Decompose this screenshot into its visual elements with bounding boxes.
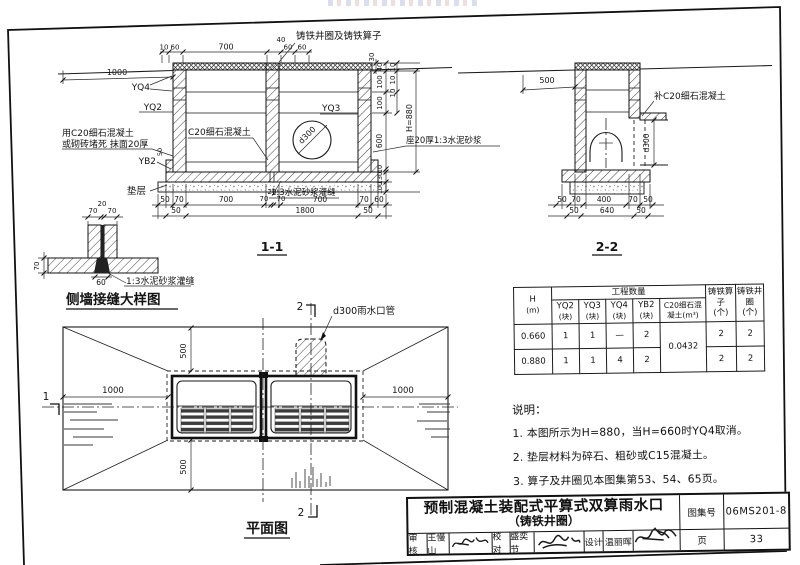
dimj-60: 60	[96, 278, 106, 287]
dim-r-600: 600	[375, 134, 384, 149]
notes-heading: 说明：	[512, 398, 792, 418]
dim22-b2-50a: 50	[569, 206, 579, 215]
dim-r-100a: 100	[376, 75, 384, 88]
note-item: 3. 算子及井圈见本图集第53、54、65页。	[513, 469, 793, 489]
note-item: 2. 垫层材料为碎石、粗砂或C15混凝土。	[513, 445, 793, 465]
col-header-yq2: YQ2(块)	[552, 300, 579, 324]
atlas-number-label: 图集号	[680, 495, 724, 531]
plan-title: 平面图	[246, 521, 288, 537]
dim-top-700: 700	[218, 43, 233, 52]
section-1-1-title: 1-1	[261, 239, 284, 254]
designer-name: 温丽晖	[604, 531, 634, 551]
dim-r-100b: 100	[376, 96, 384, 109]
dim22-b1-50a: 50	[557, 195, 567, 204]
marker-1-left: 1	[43, 391, 50, 403]
dim-b2-50a: 50	[171, 206, 181, 215]
dim-b1-70d: 70	[359, 195, 369, 204]
quantity-table: H(m) 工程数量 铸铁算子(个) 铸铁井圈(个) YQ2(块) YQ3(块) …	[513, 283, 765, 374]
section-2-2-title: 2-2	[596, 239, 619, 254]
c20-volume-value: 0.0432	[660, 322, 707, 373]
notes: 说明： 1. 本图所示为H=880，当H=660时YQ4取消。 2. 垫层材料为…	[512, 398, 793, 497]
label-yq3: YQ3	[321, 104, 340, 114]
page-number: 33	[724, 529, 788, 550]
dim22-b2-50b: 50	[636, 206, 646, 215]
dim-r-100c: 100	[376, 182, 384, 194]
dimj-70-left: 70	[33, 262, 41, 271]
col-header-c20: C20细石混凝土(m³)	[660, 298, 706, 323]
designer-label: 设计	[584, 531, 604, 551]
label-infill-concrete: C20细石混凝土	[188, 126, 251, 138]
col-header-ring: 铸铁井圈(个)	[735, 284, 764, 321]
dim-1000-left: 1000	[107, 68, 127, 77]
dimj-70a: 70	[89, 207, 98, 215]
label-seal-line1: 用C20细石混凝土	[62, 127, 134, 139]
dim-b1-700b: 700	[313, 195, 328, 204]
plan-view: d300雨水口管 2 2 1 500 1000 1000 500 平面图	[42, 301, 458, 538]
reviewer-signature	[450, 533, 493, 554]
table-row: 0.880 1 1 4 2 2 2	[514, 346, 764, 374]
dimp-1000-left: 1000	[102, 386, 124, 396]
label-cast-iron-ring-grate: 铸铁井圈及铸铁算子	[296, 30, 382, 42]
title-block: 预制混凝土装配式平算式双算雨水口 （铸铁井圈） 图集号 06MS201-8 审核…	[406, 492, 791, 556]
col-header-h: H(m)	[514, 287, 553, 325]
label-yq2: YQ2	[143, 103, 162, 113]
dim-b1-70c: 70	[277, 195, 286, 203]
note-item: 1. 本图所示为H=880，当H=660时YQ4取消。	[512, 421, 792, 441]
dim22-b1-70a: 70	[571, 195, 581, 204]
checker-name: 盛奕节	[510, 532, 535, 552]
dim-r-h880: H=880	[405, 104, 414, 132]
dim-r-10c: 10	[389, 89, 397, 98]
dim-top-60c: 60	[298, 44, 307, 52]
reviewer-name: 王慢山	[427, 533, 450, 553]
table-row: 0.660 1 1 — 2 0.0432 2 2	[514, 321, 764, 349]
dim-r-10b: 10	[389, 76, 397, 85]
dimp-500-bottom: 500	[179, 459, 188, 474]
dim-r-10a: 10	[389, 63, 397, 72]
dim-yb2-50: 50	[156, 148, 164, 156]
joint-detail-title: 侧墙接缝大样图	[66, 291, 161, 308]
dim-b1-70a: 70	[174, 195, 184, 204]
dim-top-10: 10	[160, 44, 169, 52]
approval-row: 审核 王慢山 校对 盛奕节 设计 温丽晖	[409, 530, 680, 554]
dim-b1-60: 60	[374, 195, 384, 204]
drawing-sheet: 1000 10 60 700 40 60 60 铸铁井圈及铸铁算子 YQ4 YQ…	[0, 0, 800, 565]
scan-artifact	[328, 0, 478, 6]
checker-signature	[535, 532, 585, 553]
dim22-b1-70b: 70	[628, 195, 638, 204]
marker-2-top: 2	[297, 301, 304, 313]
dim22-b1-400: 400	[597, 195, 612, 204]
dim22-b2-640: 640	[600, 206, 615, 215]
dim-b2-50b: 50	[363, 206, 373, 215]
dim22-b1-50b: 50	[643, 195, 653, 204]
page-label: 页	[680, 530, 724, 551]
label-bedding: 垫层	[127, 185, 146, 197]
section-1-1: 1000 10 60 700 40 60 60 铸铁井圈及铸铁算子 YQ4 YQ…	[58, 30, 500, 255]
col-header-yb2: YB2(块)	[633, 298, 660, 322]
atlas-number-value: 06MS201-8	[724, 494, 788, 530]
label-yb2: YB2	[138, 157, 156, 167]
section-2-2: d300 补C20细石混凝土 500 50 70 400 70 50 50 64…	[458, 63, 772, 255]
col-header-yq4: YQ4(块)	[606, 299, 633, 323]
dimp-500-top: 500	[179, 343, 188, 358]
col-header-grate: 铸铁算子(个)	[705, 284, 736, 321]
dimj-20: 20	[98, 200, 107, 208]
dim-b1-50a: 50	[160, 195, 170, 204]
col-header-yq3: YQ3(块)	[579, 299, 606, 323]
label-patch-concrete: 补C20细石混凝土	[654, 90, 726, 102]
dim-pipe-d300-22: d300	[642, 133, 651, 152]
label-pipe-d300: d300	[297, 125, 318, 146]
reviewer-label: 审核	[409, 534, 428, 554]
dim-r-30: 30	[368, 53, 376, 62]
label-seal-line2: 或砌砖堵死 抹面20厚	[62, 138, 148, 150]
dim-b1-70b: 70	[260, 195, 269, 203]
dim-b1-20: 20	[268, 188, 277, 196]
dim-b1-700a: 700	[219, 195, 234, 204]
dim-b2-1800: 1800	[295, 206, 314, 215]
checker-label: 校对	[492, 533, 510, 553]
dim-r-40: 40	[376, 63, 384, 72]
dimp-1000-right: 1000	[392, 386, 414, 396]
dim-500-22: 500	[539, 76, 554, 85]
dimj-70b: 70	[108, 207, 117, 215]
label-yq4: YQ4	[131, 83, 151, 93]
designer-signature	[633, 530, 679, 551]
label-grout-joint: 1:3水泥砂浆灌缝	[126, 275, 195, 287]
label-seat-mortar: 座20厚1:3水泥砂浆	[406, 135, 482, 146]
dim-top-60a: 60	[171, 44, 180, 52]
marker-2-bottom: 2	[298, 507, 305, 519]
label-plan-pipe: d300雨水口管	[333, 305, 395, 317]
